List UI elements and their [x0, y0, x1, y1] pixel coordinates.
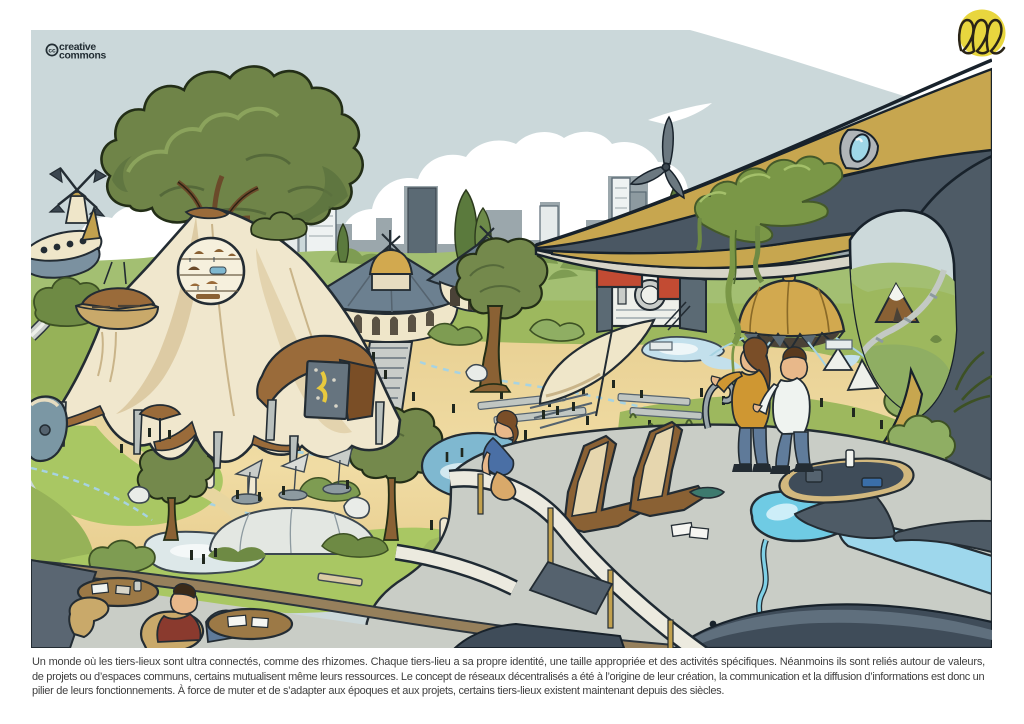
svg-text:cc: cc: [48, 48, 56, 55]
svg-text:commons: commons: [59, 51, 106, 62]
